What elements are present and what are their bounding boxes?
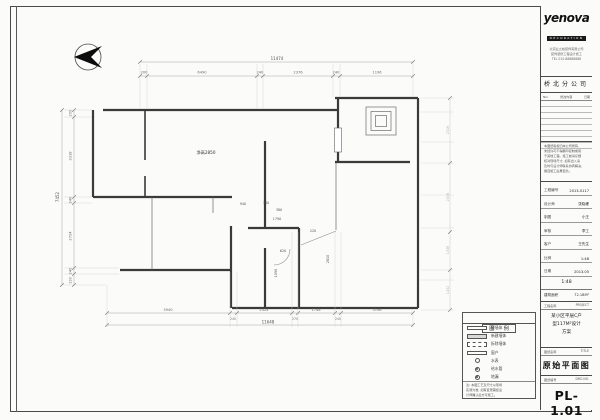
field-value: 2013-0117 [569, 189, 589, 193]
company-info-line: TEL 010-88888888 [541, 57, 592, 62]
water-meter-icon [475, 358, 480, 363]
dim-label: 380 [276, 208, 282, 212]
field-label: 客户 [544, 242, 551, 247]
window-swatch-icon [467, 351, 487, 355]
legend-item: 地漏 [463, 373, 535, 381]
legend-note-line: 计师确认后方可施工。 [466, 393, 532, 398]
shaft-symbol [366, 107, 396, 135]
info-fields: 工程编号 2013-0117 设计师 张晓峰 制图 小王 审核 李工 客户 王先… [541, 181, 592, 277]
dim-label: 11648 [262, 320, 275, 325]
company-info: 北京业之峰装饰有限公司 装饰装修工程设计施工 TEL 010-88888888 [541, 47, 592, 62]
dim-label: 1790 [273, 217, 281, 221]
brand-name: yenova [541, 13, 592, 24]
drawing-number-header: 图纸编号 DRG NO. [541, 376, 592, 384]
area-label: 建筑面积 [544, 293, 558, 298]
revision-header: NO. 修改内容 日期 [541, 93, 592, 101]
dim-label: 3198 [372, 308, 382, 312]
title-label: 图纸名称 [544, 349, 556, 354]
number-label: 图纸编号 [544, 377, 556, 382]
field-value: 王先生 [578, 242, 589, 247]
original-wall-swatch-icon [467, 326, 487, 331]
dim-label: 130 [69, 276, 73, 284]
legend-item-label: 新建墙体 [491, 333, 506, 339]
dim-label: 200 [141, 71, 149, 75]
field-row: 客户 王先生 [541, 236, 592, 250]
legend-item-label: 水表 [491, 358, 499, 364]
north-arrow-icon [74, 44, 102, 70]
legend-item-label: 原墙体 [491, 325, 502, 331]
drawing-title: 原始平面图 [541, 356, 592, 371]
plan-walls [93, 98, 418, 308]
field-value: 2013.05 [574, 270, 589, 274]
drawing-sheet: { "colors": {"line":"#3a3a3a","dim":"#8a… [0, 0, 600, 420]
rev-no-header: NO. [543, 95, 548, 99]
branch-name: 桥北分公司 [541, 76, 592, 93]
field-row: 审核 李工 [541, 223, 592, 237]
dimension-ticks [60, 60, 452, 327]
dim-label: 940 [240, 202, 246, 206]
legend-item-label: 给水管 [491, 366, 502, 372]
field-value: 张晓峰 [578, 202, 589, 207]
dim-label: 3318 [69, 151, 73, 161]
field-row: 制图 小王 [541, 209, 592, 223]
water-pipe-icon [475, 367, 480, 372]
dim-label: 200 [69, 109, 73, 117]
dim-label: 7452 [55, 191, 60, 202]
title-label-en: TITLE [581, 349, 589, 353]
dim-label: 620 [280, 249, 286, 253]
project-label: 工程名称 [544, 303, 556, 308]
project-name-line: 方案 [541, 329, 592, 337]
company-logo: yenova DECORATION 北京业之峰装饰有限公司 装饰装修工程设计施工… [541, 6, 592, 76]
field-row: 设计师 张晓峰 [541, 196, 592, 210]
project-header: 工程名称 PROJECT [541, 302, 592, 310]
copyright-notes: 本图纸版权归本公司所有, 未经许可不得翻印复制或用 于其他工程。施工前请仔细 核… [541, 141, 592, 181]
rev-date-header: 日期 [584, 95, 590, 99]
field-value: 小王 [582, 215, 589, 220]
rev-content-header: 修改内容 [560, 95, 572, 99]
dim-label: 740 [263, 201, 269, 205]
brand-subtitle: DECORATION [547, 36, 587, 41]
field-label: 制图 [544, 215, 551, 220]
field-value: 李工 [582, 229, 589, 234]
field-value: 1:48 [581, 257, 589, 261]
legend-item-label: 地漏 [491, 374, 499, 380]
legend-header: 图 例 [463, 313, 535, 324]
dim-label: 220 [310, 229, 316, 233]
dimension-lines [62, 62, 413, 325]
plan-thin-lines [152, 163, 336, 270]
dim-label: 2306 [446, 193, 450, 202]
extension-lines [64, 64, 454, 327]
drawing-title-section: 图纸名称 TITLE 原始平面图 [541, 348, 592, 376]
project-name: 某小区平层C户 型117M²设计 方案 [541, 310, 592, 338]
dim-label: 1196 [372, 71, 382, 75]
dim-label: 2324 [259, 308, 269, 312]
legend-box: 图 例 原墙体 新建墙体 拆除墙体 窗户 水表 给水管 地漏 注: 本图工艺及尺… [462, 312, 536, 399]
area-row: 建筑面积 72.18M² [541, 289, 592, 302]
drawing-number: PL-1.01 [541, 384, 592, 418]
dim-label: 1090 [274, 269, 278, 277]
project-section: 工程名称 PROJECT 某小区平层C户 型117M²设计 方案 [541, 302, 592, 348]
floor-drain-icon [475, 375, 480, 380]
scale-value: 1:48 [541, 277, 592, 289]
new-wall-swatch-icon [467, 334, 487, 339]
window-symbol [335, 128, 342, 152]
dim-label: 2376 [293, 71, 303, 75]
room-height-label: 净高2850 [196, 149, 215, 156]
field-label: 设计师 [544, 202, 555, 207]
dim-label: 1432 [446, 286, 450, 295]
field-label: 审核 [544, 229, 551, 234]
dim-label: 11474 [271, 56, 284, 61]
dim-label: 2810 [326, 255, 330, 263]
field-label: 日期 [544, 269, 551, 274]
dim-label: 240 [333, 71, 341, 75]
field-label: 工程编号 [544, 188, 558, 193]
legend-item: 原墙体 [463, 324, 535, 332]
legend-item: 水表 [463, 357, 535, 365]
dim-label: 240 [335, 317, 341, 321]
drawing-title-header: 图纸名称 TITLE [541, 348, 592, 356]
field-row: 日期 2013.05 [541, 263, 592, 277]
dim-label: 1748 [311, 308, 321, 312]
legend-item: 新建墙体 [463, 332, 535, 340]
drawing-number-section: 图纸编号 DRG NO. PL-1.01 [541, 376, 592, 418]
dim-label: 6490 [197, 71, 207, 75]
legend-item: 拆除墙体 [463, 340, 535, 348]
field-row: 比例 1:48 [541, 250, 592, 264]
legend-item-label: 窗户 [491, 350, 499, 356]
revision-table: NO. 修改内容 日期 [541, 93, 592, 141]
dim-label: 240 [257, 71, 265, 75]
dim-label: 3940 [163, 308, 173, 312]
field-label: 比例 [544, 256, 551, 261]
project-name-line: 型117M²设计 [541, 321, 592, 329]
dim-label: 1338 [446, 246, 450, 255]
dim-label: 240 [69, 196, 73, 204]
dim-label: 240 [230, 317, 236, 321]
title-block: yenova DECORATION 北京业之峰装饰有限公司 装饰装修工程设计施工… [540, 6, 592, 410]
dim-label: 2316 [446, 126, 450, 135]
area-value: 72.18M² [574, 293, 589, 297]
note-line: 擅自施工后果自负。 [544, 169, 589, 174]
field-row: 工程编号 2013-0117 [541, 182, 592, 196]
legend-note: 注: 本图工艺及尺寸以现场 实测为准, 如有变更需经设 计师确认后方可施工。 [463, 381, 535, 398]
dim-label: 2724 [69, 231, 73, 241]
project-name-line: 某小区平层C户 [541, 313, 592, 321]
demolished-wall-swatch-icon [467, 342, 487, 347]
legend-item-label: 拆除墙体 [491, 341, 506, 347]
project-label-en: PROJECT [576, 303, 589, 307]
number-label-en: DRG NO. [575, 377, 589, 381]
dim-label: 240 [69, 267, 73, 275]
legend-item: 给水管 [463, 365, 535, 373]
legend-item: 窗户 [463, 349, 535, 357]
dim-label: 270 [292, 317, 298, 321]
